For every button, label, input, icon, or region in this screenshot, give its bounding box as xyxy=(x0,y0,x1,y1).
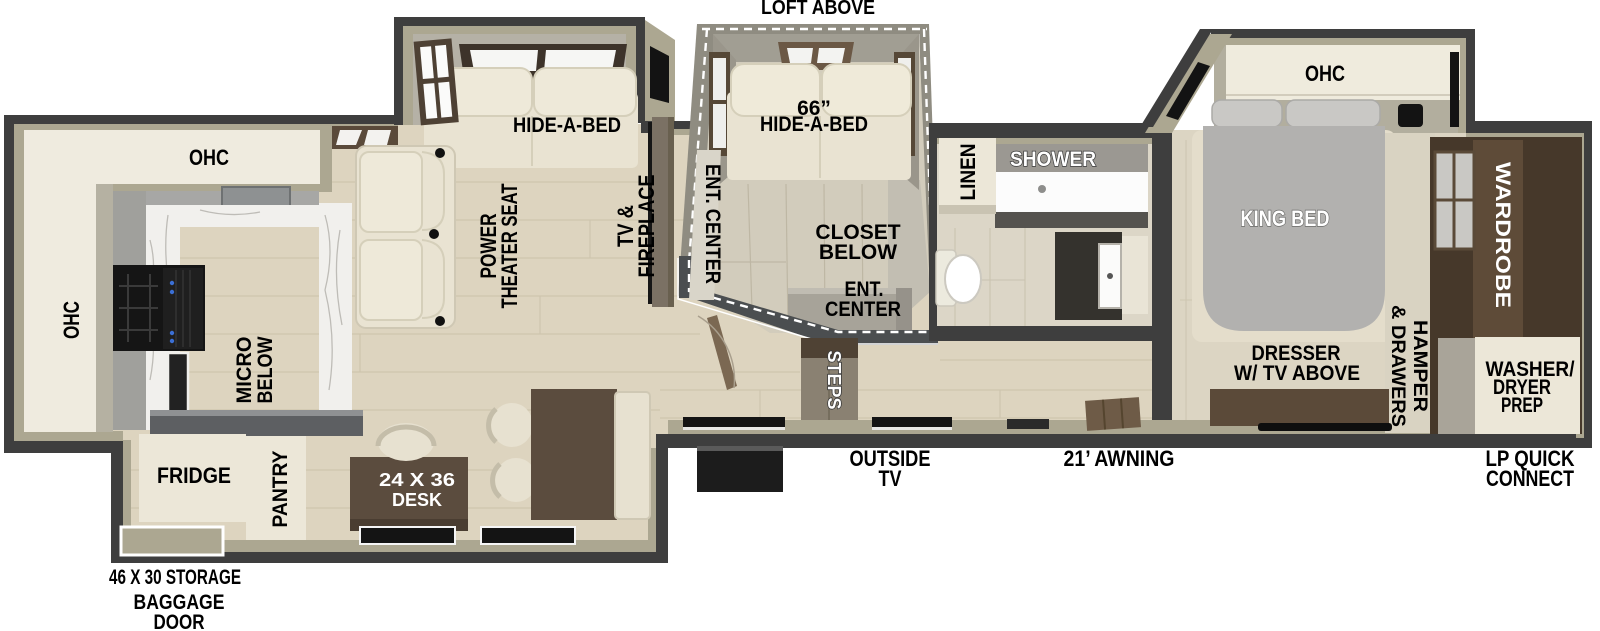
svg-text:BELOW: BELOW xyxy=(254,336,277,403)
svg-text:FRIDGE: FRIDGE xyxy=(157,463,231,488)
svg-text:LOFT ABOVE: LOFT ABOVE xyxy=(761,0,875,19)
svg-text:HAMPER: HAMPER xyxy=(1409,320,1430,412)
svg-text:LINEN: LINEN xyxy=(957,144,980,201)
svg-text:FIREPLACE: FIREPLACE xyxy=(634,175,659,278)
svg-text:CONNECT: CONNECT xyxy=(1486,466,1574,491)
svg-text:PANTRY: PANTRY xyxy=(269,451,292,528)
svg-text:DOOR: DOOR xyxy=(154,611,205,631)
svg-text:WARDROBE: WARDROBE xyxy=(1491,162,1514,308)
svg-text:PREP: PREP xyxy=(1501,394,1543,417)
svg-text:HIDE-A-BED: HIDE-A-BED xyxy=(513,114,621,137)
svg-text:TV: TV xyxy=(879,466,902,491)
svg-text:KING BED: KING BED xyxy=(1241,206,1330,231)
svg-text:BELOW: BELOW xyxy=(819,241,897,264)
svg-text:THEATER SEAT: THEATER SEAT xyxy=(497,183,522,308)
svg-text:W/ TV ABOVE: W/ TV ABOVE xyxy=(1234,362,1360,385)
svg-text:STEPS: STEPS xyxy=(824,350,844,409)
svg-text:DESK: DESK xyxy=(392,490,442,510)
svg-text:& DRAWERS: & DRAWERS xyxy=(1387,305,1408,427)
svg-text:CENTER: CENTER xyxy=(825,298,901,321)
svg-text:ENT. CENTER: ENT. CENTER xyxy=(701,164,724,284)
svg-text:MICRO: MICRO xyxy=(233,337,256,404)
svg-text:24 X 36: 24 X 36 xyxy=(379,470,455,490)
svg-text:HIDE-A-BED: HIDE-A-BED xyxy=(760,113,868,136)
svg-text:21’ AWNING: 21’ AWNING xyxy=(1064,446,1175,471)
svg-text:OHC: OHC xyxy=(189,145,229,170)
svg-text:SHOWER: SHOWER xyxy=(1010,148,1096,171)
svg-text:46 X 30 STORAGE: 46 X 30 STORAGE xyxy=(109,566,241,589)
svg-text:OHC: OHC xyxy=(59,301,84,339)
svg-text:OHC: OHC xyxy=(1305,61,1345,86)
